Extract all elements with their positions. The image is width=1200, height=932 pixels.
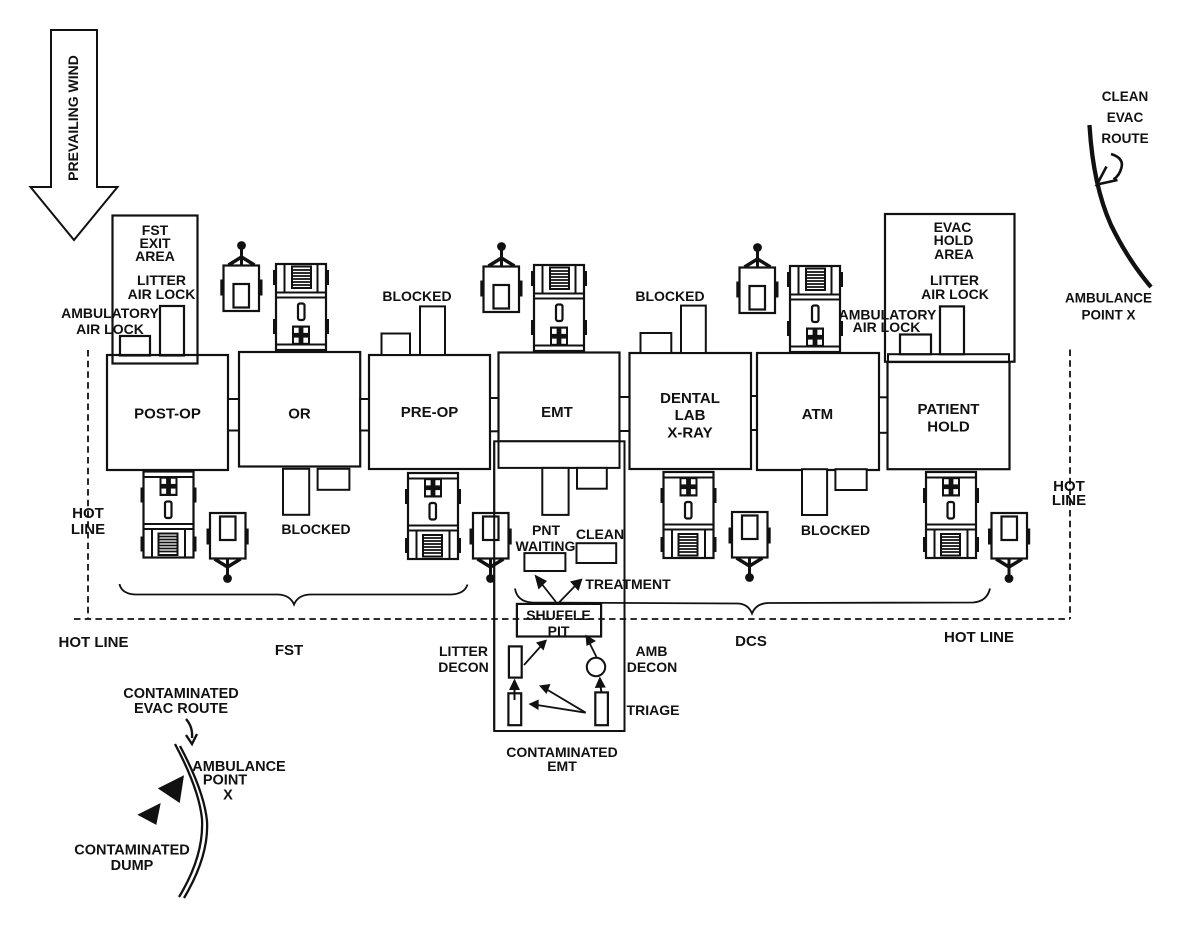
svg-text:PNT: PNT — [532, 522, 560, 538]
svg-text:LAB: LAB — [675, 407, 706, 424]
svg-text:X: X — [223, 788, 233, 804]
svg-text:ROUTE: ROUTE — [1101, 131, 1148, 146]
svg-text:DCS: DCS — [735, 633, 767, 650]
svg-text:PIT: PIT — [548, 623, 570, 639]
svg-text:PRE-OP: PRE-OP — [401, 404, 459, 421]
svg-text:SHUFFLE: SHUFFLE — [526, 607, 591, 623]
svg-text:POINT X: POINT X — [1081, 308, 1135, 323]
svg-text:PREVAILING WIND: PREVAILING WIND — [65, 55, 81, 181]
svg-text:EMT: EMT — [547, 758, 577, 774]
svg-text:BLOCKED: BLOCKED — [382, 288, 451, 304]
svg-text:TREATMENT: TREATMENT — [585, 576, 671, 592]
svg-text:DECON: DECON — [438, 659, 489, 675]
svg-text:ATM: ATM — [802, 406, 833, 423]
svg-text:EVAC: EVAC — [1107, 110, 1144, 125]
svg-text:EMT: EMT — [541, 404, 573, 421]
svg-text:AMBULANCE: AMBULANCE — [1065, 291, 1152, 306]
svg-text:CONTAMINATED: CONTAMINATED — [123, 686, 238, 702]
svg-text:CLEAN: CLEAN — [576, 526, 624, 542]
svg-text:AMB: AMB — [636, 643, 668, 659]
svg-text:X-RAY: X-RAY — [667, 425, 712, 442]
svg-text:FST: FST — [275, 642, 303, 659]
svg-text:EVAC ROUTE: EVAC ROUTE — [134, 701, 228, 717]
svg-text:POINT: POINT — [203, 773, 247, 789]
svg-text:LITTER: LITTER — [439, 643, 488, 659]
svg-text:WAITING: WAITING — [516, 538, 576, 554]
svg-text:CLEAN: CLEAN — [1102, 89, 1149, 104]
svg-text:AIR LOCK: AIR LOCK — [921, 286, 989, 302]
svg-text:BLOCKED: BLOCKED — [635, 288, 704, 304]
svg-text:POST-OP: POST-OP — [134, 406, 201, 423]
svg-text:LINE: LINE — [71, 521, 105, 538]
svg-text:TRIAGE: TRIAGE — [627, 702, 680, 718]
svg-text:LINE: LINE — [1052, 492, 1086, 509]
svg-text:AIR LOCK: AIR LOCK — [76, 321, 144, 337]
svg-text:HOT: HOT — [72, 505, 104, 522]
svg-text:BLOCKED: BLOCKED — [281, 521, 350, 537]
svg-text:DENTAL: DENTAL — [660, 390, 720, 407]
svg-text:AMBULATORY: AMBULATORY — [61, 305, 159, 321]
svg-text:AREA: AREA — [135, 248, 175, 264]
svg-text:HOT LINE: HOT LINE — [944, 629, 1014, 646]
svg-text:BLOCKED: BLOCKED — [801, 522, 870, 538]
svg-text:HOLD: HOLD — [927, 419, 970, 436]
svg-text:HOT LINE: HOT LINE — [59, 634, 129, 651]
svg-text:PATIENT: PATIENT — [918, 401, 980, 418]
svg-text:AIR LOCK: AIR LOCK — [128, 286, 196, 302]
svg-text:DUMP: DUMP — [111, 858, 154, 874]
svg-text:AREA: AREA — [934, 246, 974, 262]
svg-text:OR: OR — [288, 406, 311, 423]
svg-text:AIR LOCK: AIR LOCK — [853, 319, 921, 335]
svg-text:DECON: DECON — [627, 659, 678, 675]
svg-text:CONTAMINATED: CONTAMINATED — [74, 843, 189, 859]
